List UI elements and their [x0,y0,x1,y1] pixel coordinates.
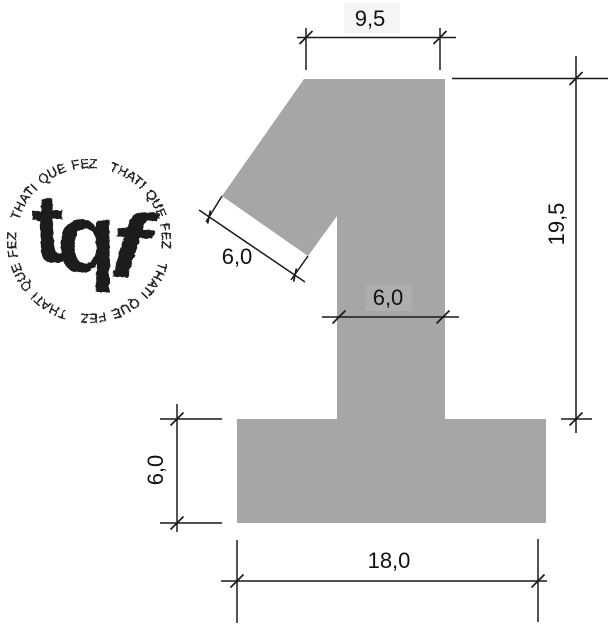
svg-text:6,0: 6,0 [373,285,404,310]
svg-text:6,0: 6,0 [222,244,253,269]
svg-text:9,5: 9,5 [355,6,386,31]
svg-text:6,0: 6,0 [143,455,168,486]
svg-text:19,5: 19,5 [544,203,569,246]
svg-text:18,0: 18,0 [368,548,411,573]
